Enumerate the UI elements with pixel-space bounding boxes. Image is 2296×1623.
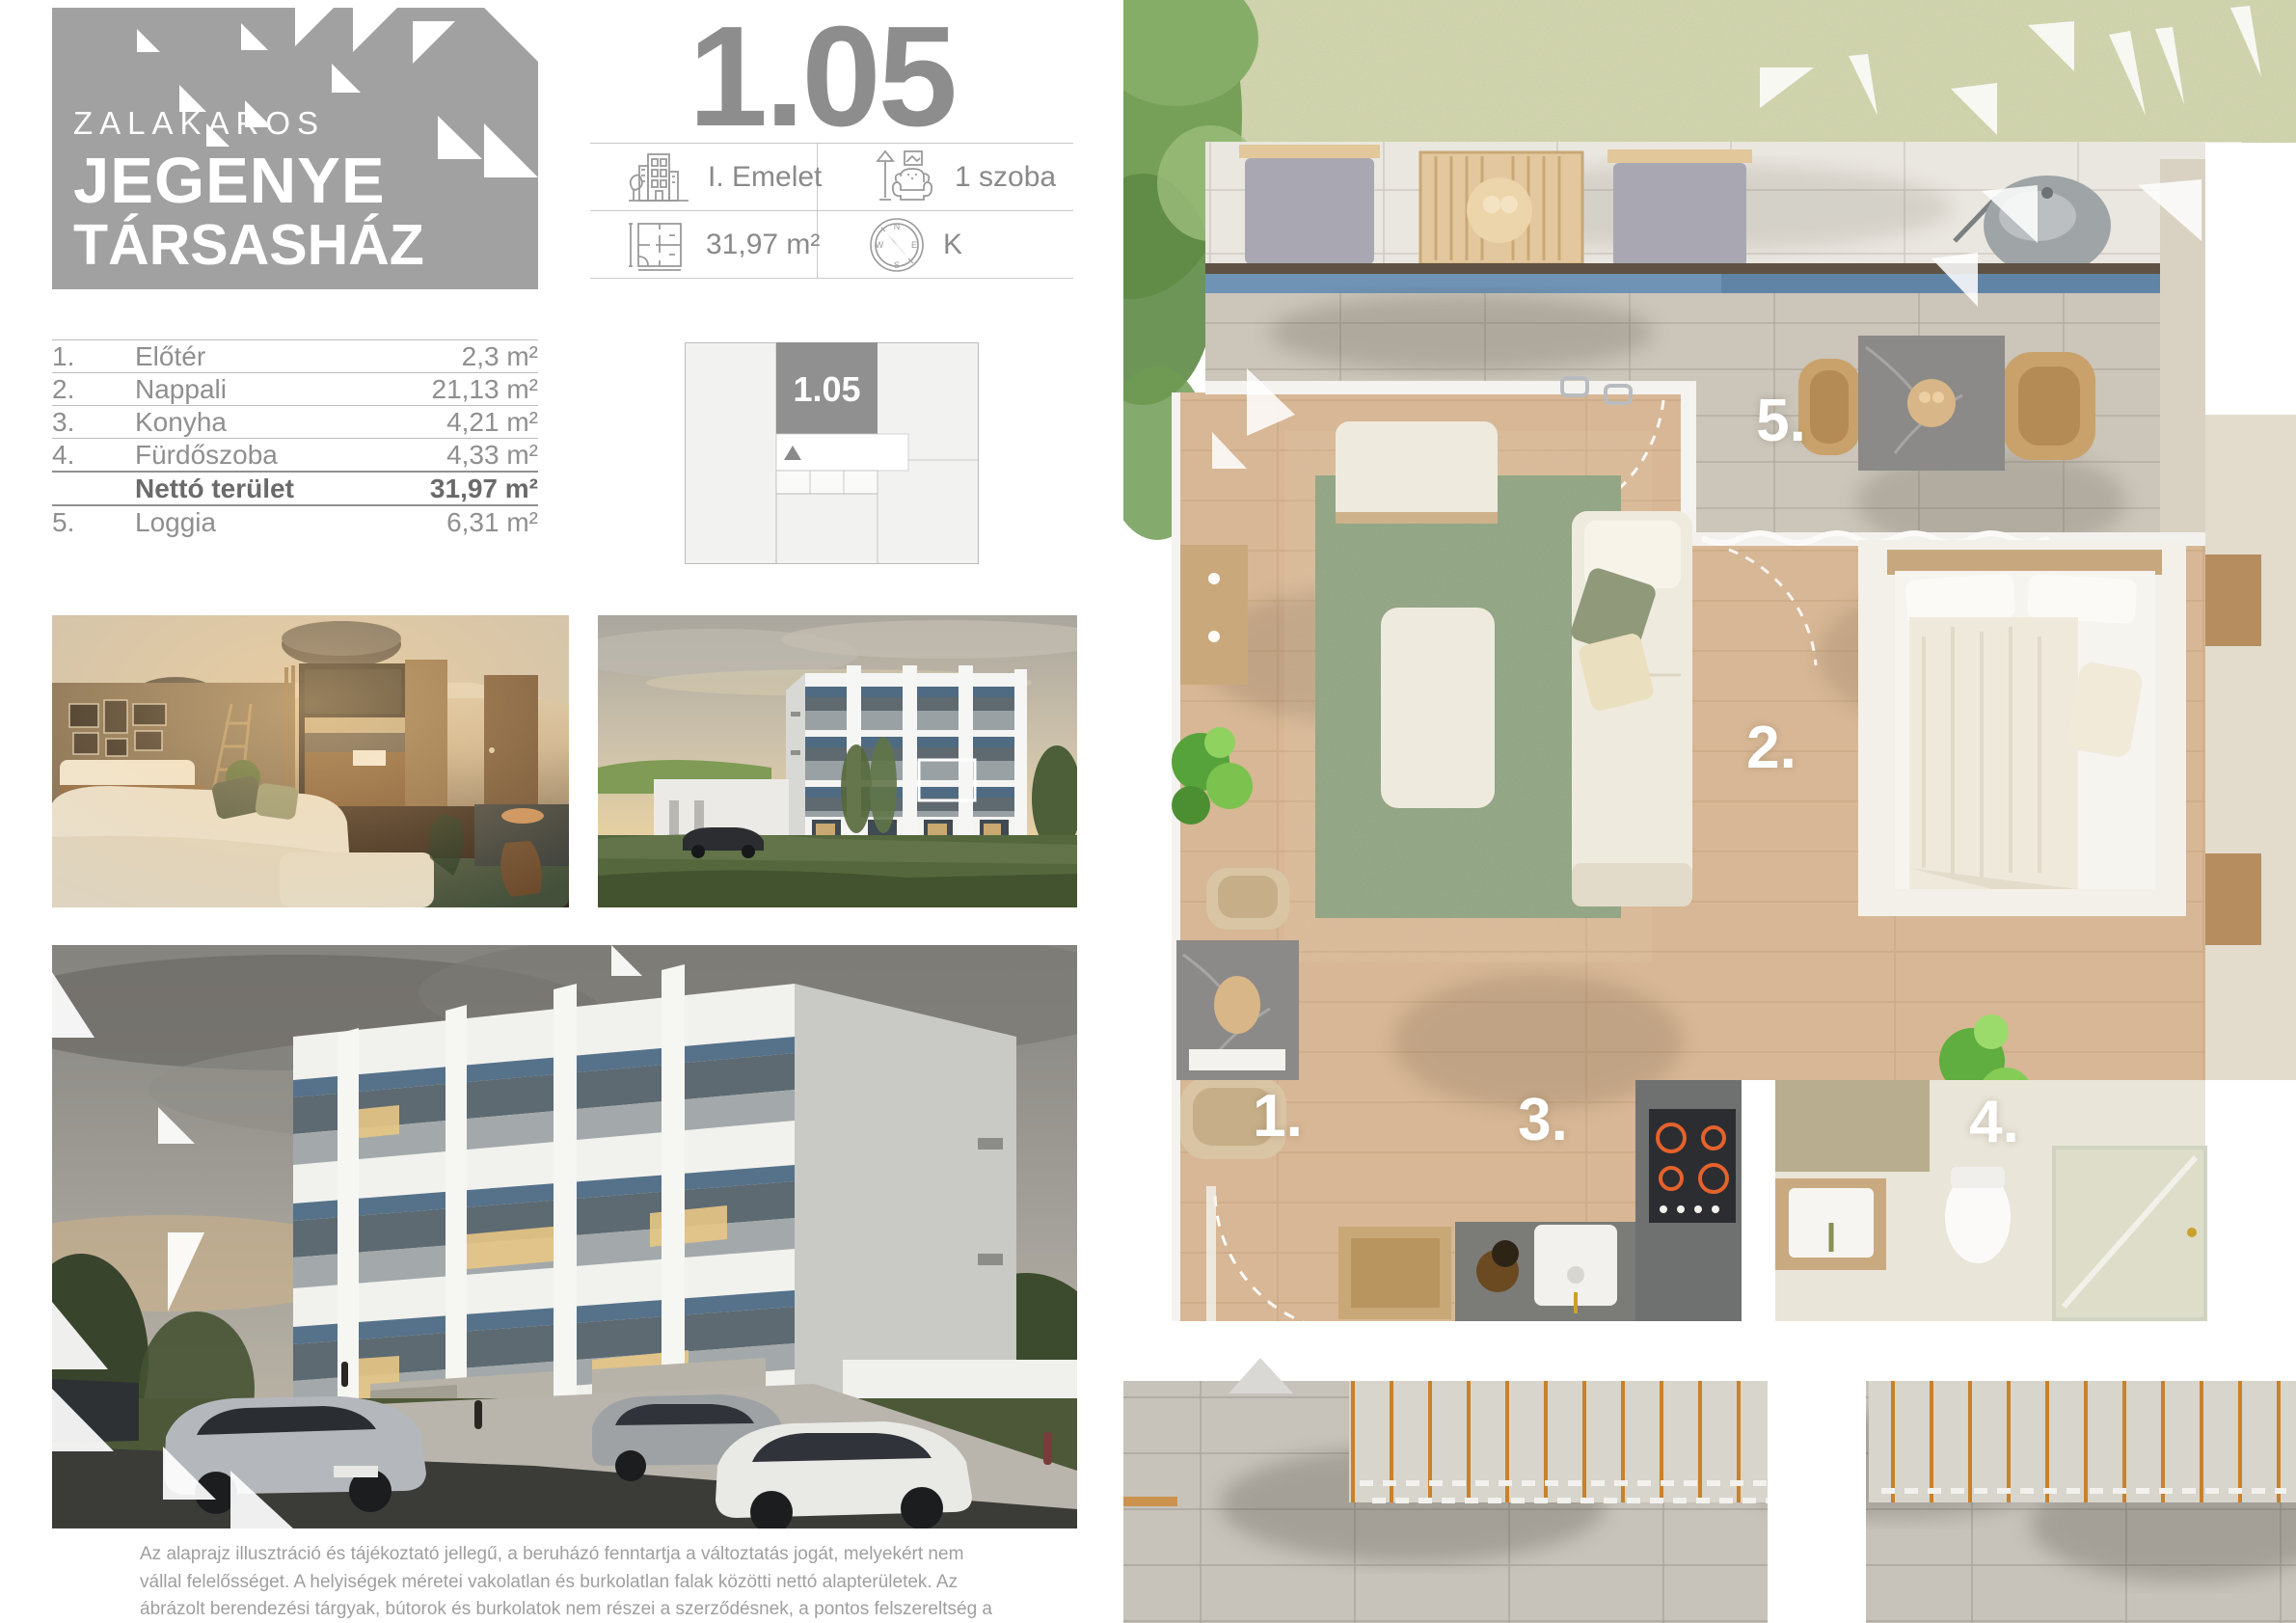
compass-n: N bbox=[894, 222, 901, 231]
brand-name-line2: TÁRSASHÁZ bbox=[73, 217, 424, 274]
info-orientation-label: K bbox=[943, 229, 962, 261]
row-num: 5. bbox=[52, 507, 135, 538]
compass-w: W bbox=[876, 240, 884, 250]
sun-lounger bbox=[1239, 145, 1380, 264]
info-area-label: 31,97 m² bbox=[706, 229, 820, 261]
compass-s: S bbox=[894, 260, 900, 270]
armchair-icon bbox=[868, 149, 937, 205]
plan-room-label-3: 3. bbox=[1518, 1091, 1568, 1150]
row-area: 4,33 m² bbox=[446, 440, 538, 471]
info-floor-label: I. Emelet bbox=[708, 161, 822, 194]
row-area: 31,97 m² bbox=[430, 473, 538, 504]
row-area: 2,3 m² bbox=[462, 341, 538, 372]
building-small bbox=[786, 665, 1027, 842]
row-name: Előtér bbox=[135, 341, 462, 372]
armchair-plan bbox=[1336, 421, 1498, 524]
floorplan-icon bbox=[627, 218, 689, 272]
table-row: 5. Loggia 6,31 m² bbox=[52, 506, 538, 538]
row-name: Nappali bbox=[135, 374, 432, 405]
row-area: 21,13 m² bbox=[432, 374, 539, 405]
info-rooms-label: 1 szoba bbox=[955, 161, 1056, 194]
brand-text: ZALAKAROS JEGENYE TÁRSASHÁZ bbox=[73, 107, 424, 274]
info-area: 31,97 m² bbox=[627, 211, 820, 278]
unit-info-table: I. Emelet 1 szoba bbox=[590, 143, 1073, 279]
row-area: 6,31 m² bbox=[446, 507, 538, 538]
table-row: 4. Fürdőszoba 4,33 m² bbox=[52, 438, 538, 471]
slat-fence bbox=[1869, 1381, 2296, 1502]
deck-edge bbox=[1205, 263, 2242, 274]
plan-room-label-2: 2. bbox=[1746, 718, 1796, 778]
sun-lounger bbox=[1607, 149, 1752, 267]
room-area-table: 1. Előtér 2,3 m² 2. Nappali 21,13 m² 3. … bbox=[52, 339, 538, 538]
row-name: Konyha bbox=[135, 407, 446, 438]
row-area: 4,21 m² bbox=[446, 407, 538, 438]
table-row-total: Nettó terület 31,97 m² bbox=[52, 471, 538, 506]
row-num: 4. bbox=[52, 440, 135, 471]
plan-room-label-4: 4. bbox=[1969, 1093, 2019, 1152]
hatchback-white bbox=[716, 1421, 972, 1528]
brand-city: ZALAKAROS bbox=[73, 107, 424, 139]
plan-room-label-1: 1. bbox=[1253, 1087, 1303, 1147]
slat-table bbox=[1420, 152, 1582, 264]
diagram-unit-label: 1.05 bbox=[776, 369, 878, 410]
brand-logo: ZALAKAROS JEGENYE TÁRSASHÁZ bbox=[52, 8, 538, 289]
floorplan-render: 1. 2. 3. 4. 5. bbox=[1123, 0, 2296, 1623]
ottoman bbox=[1381, 608, 1495, 808]
sofa-plan bbox=[1569, 511, 1692, 906]
table-row: 1. Előtér 2,3 m² bbox=[52, 339, 538, 372]
info-floor: I. Emelet bbox=[627, 144, 822, 210]
table-row: 2. Nappali 21,13 m² bbox=[52, 372, 538, 405]
row-name: Loggia bbox=[135, 507, 446, 538]
compass-icon: N E S W bbox=[868, 216, 926, 274]
table-row: 3. Konyha 4,21 m² bbox=[52, 405, 538, 438]
compass-e: E bbox=[911, 240, 917, 250]
exterior-render-photo-large bbox=[52, 945, 1077, 1528]
building-icon bbox=[627, 150, 690, 204]
row-num: 2. bbox=[52, 374, 135, 405]
building-position-diagram: 1.05 bbox=[685, 342, 979, 564]
plan-room-label-5: 5. bbox=[1756, 392, 1806, 451]
row-name: Nettó terület bbox=[135, 473, 430, 504]
unit-number-title: 1.05 bbox=[617, 6, 955, 149]
apartment-datasheet: ZALAKAROS JEGENYE TÁRSASHÁZ 1.05 bbox=[0, 0, 2296, 1623]
row-name: Fürdőszoba bbox=[135, 440, 446, 471]
sideboard bbox=[1180, 545, 1248, 685]
info-orientation: N E S W K bbox=[868, 211, 962, 278]
interior-render-photo bbox=[52, 615, 569, 907]
disclaimer-text: Az alaprajz illusztráció és tájékoztató … bbox=[140, 1541, 992, 1623]
info-rooms: 1 szoba bbox=[868, 144, 1056, 210]
exterior-render-photo-small bbox=[598, 615, 1077, 907]
row-num: 1. bbox=[52, 341, 135, 372]
row-num: 3. bbox=[52, 407, 135, 438]
brand-name-line1: JEGENYE bbox=[73, 149, 424, 213]
